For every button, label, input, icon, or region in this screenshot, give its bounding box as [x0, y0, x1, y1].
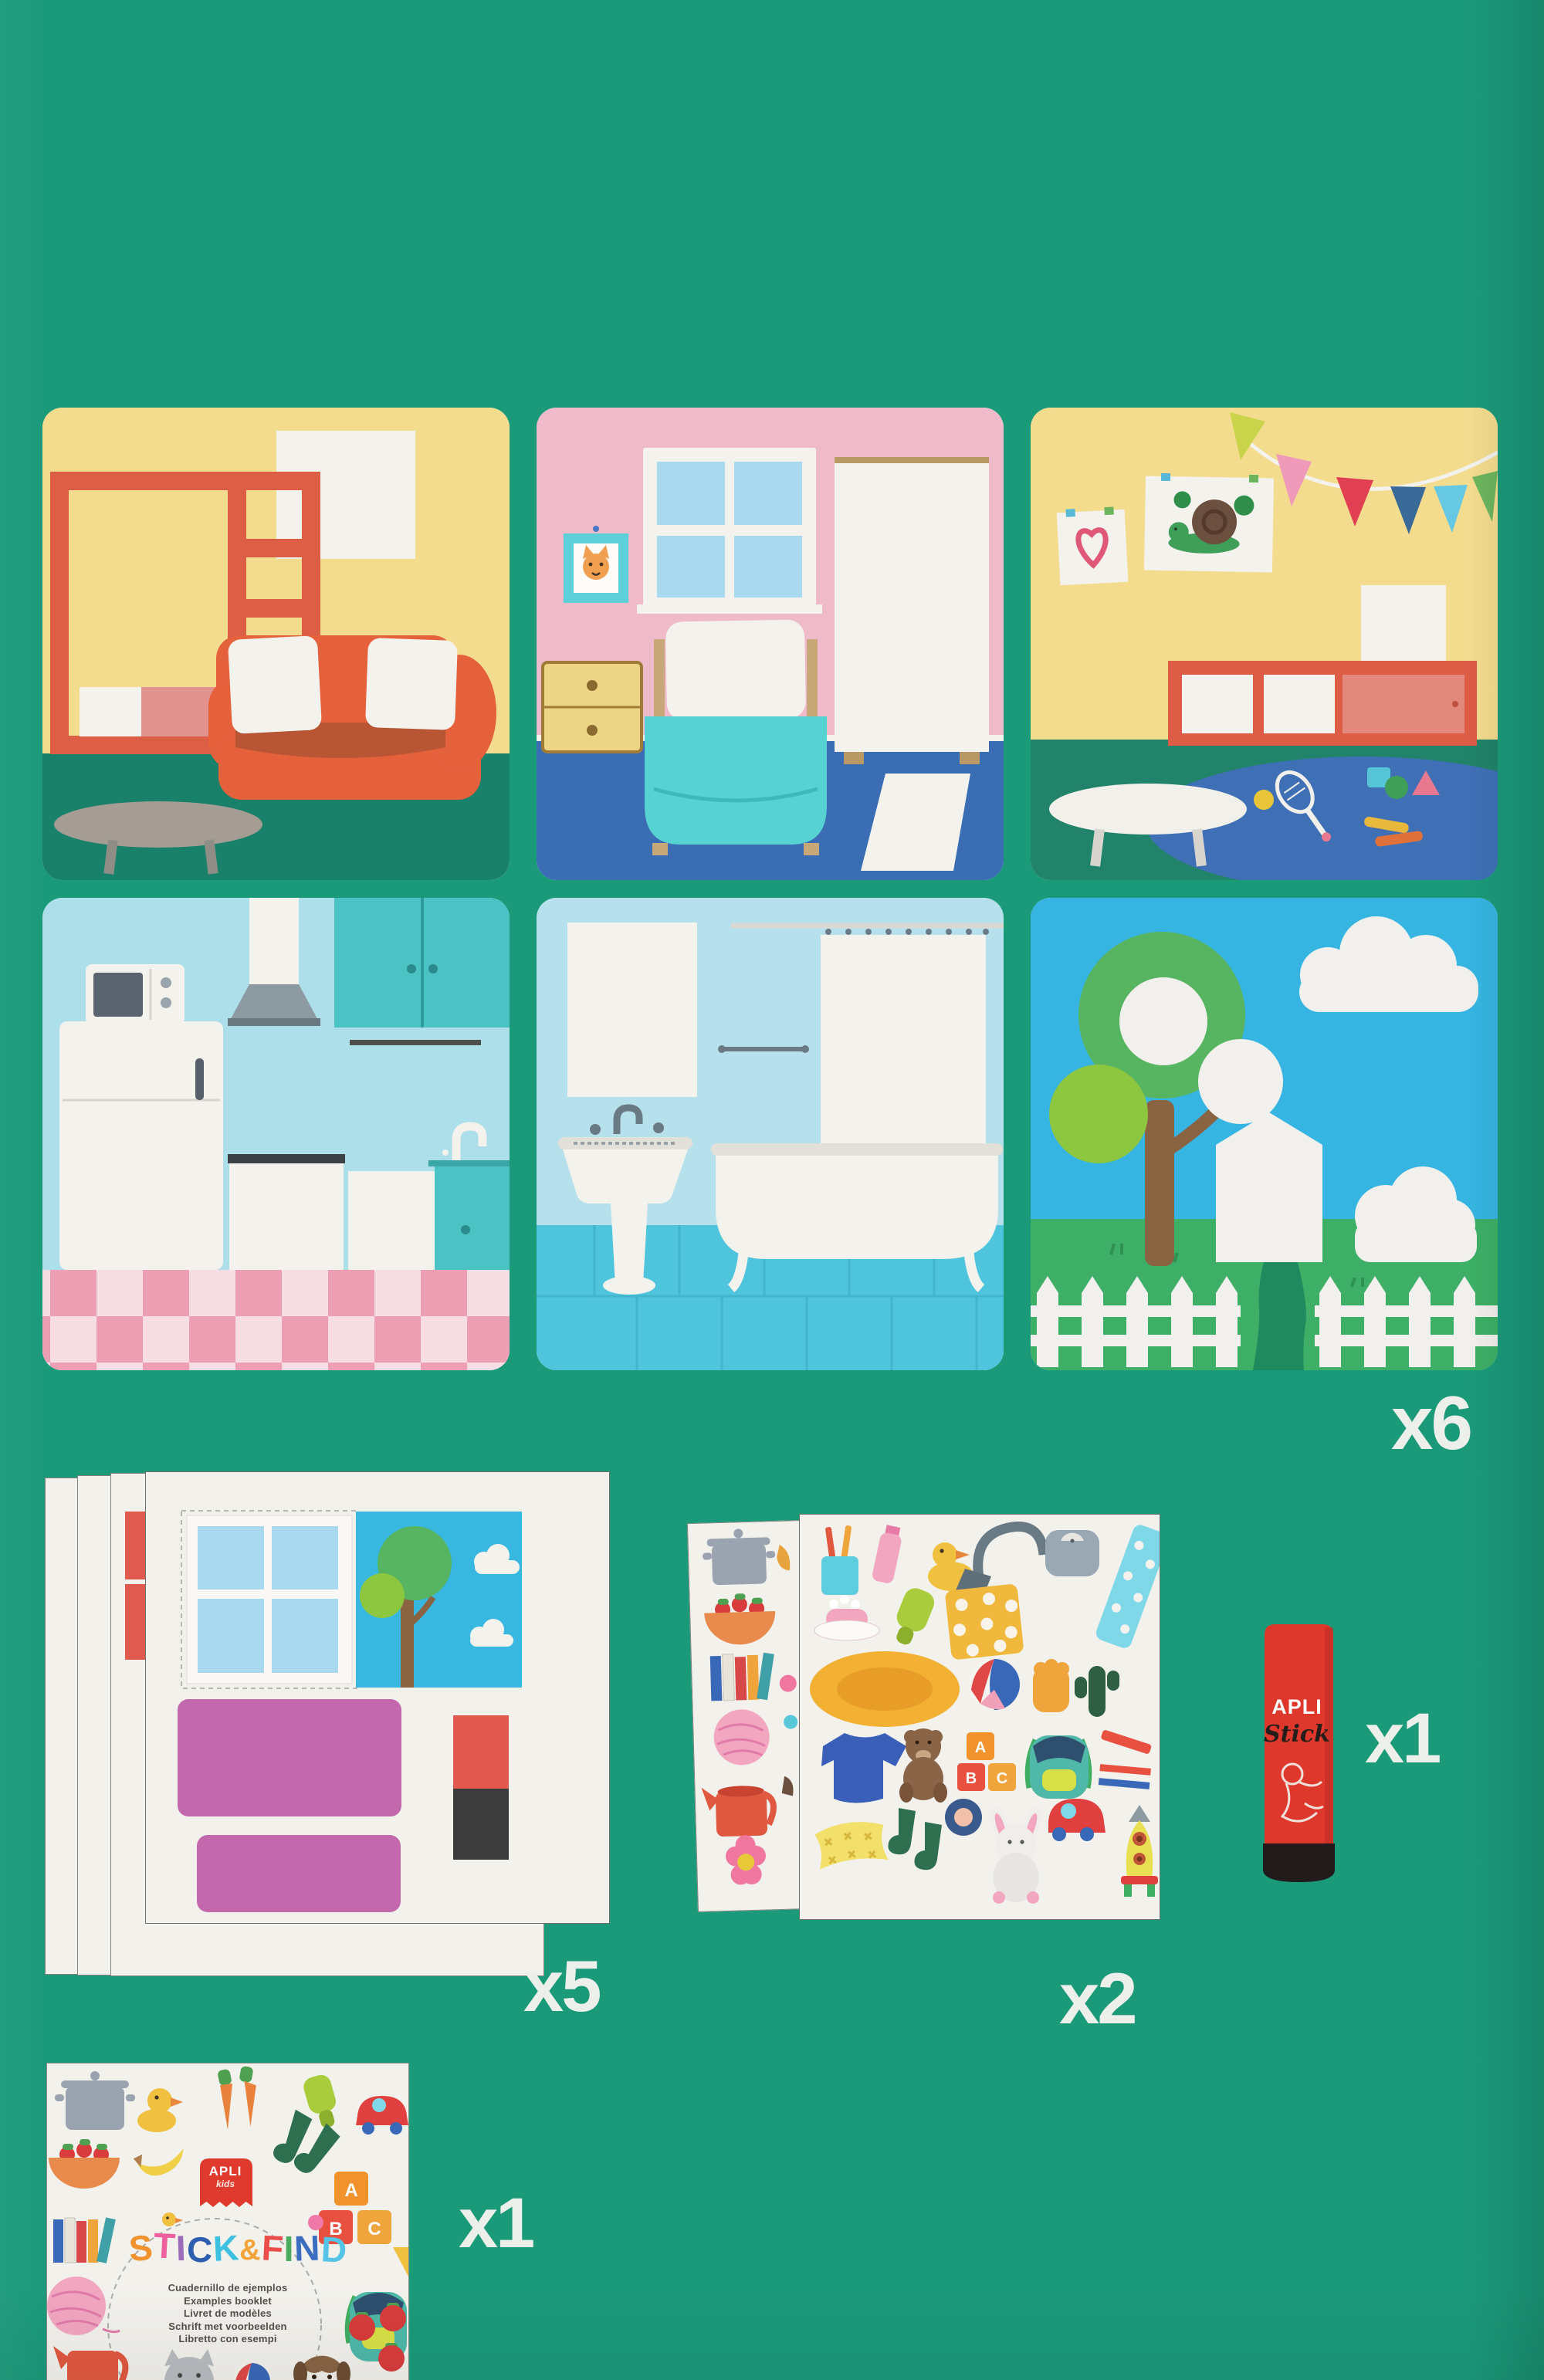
toothpaste-sticker — [871, 1524, 904, 1584]
living-room-scene — [42, 408, 510, 880]
scene-card-kitchen — [42, 898, 510, 1370]
blank-door-spot-left — [1182, 675, 1253, 733]
playroom-scene — [1031, 408, 1498, 880]
hairbrush-sticker — [888, 1585, 938, 1650]
triangle-sticker — [393, 2247, 408, 2277]
blank-fridge-spot — [59, 1021, 223, 1270]
booklet-count: x1 — [459, 2188, 533, 2259]
blank-picture-spot — [1361, 585, 1446, 661]
scene-card-garden — [1031, 898, 1498, 1370]
teddy-sticker — [899, 1728, 947, 1803]
blank-foliage-spot — [1198, 1039, 1283, 1124]
car-sticker — [356, 2096, 408, 2135]
coffee-table — [54, 801, 262, 848]
blank-foliage-spot — [1119, 977, 1207, 1065]
bathroom-scene — [537, 898, 1004, 1370]
pot-sticker — [55, 2071, 135, 2130]
blank-stove-spot — [228, 1154, 345, 1270]
svg-text:C: C — [997, 1770, 1007, 1787]
top-house-sheet — [145, 1471, 610, 1924]
glue-stick-art: APLI Stick — [1258, 1620, 1339, 1891]
scene-card-bedroom — [537, 408, 1004, 880]
blank-cushion-spot-left — [228, 635, 322, 734]
low-table — [1049, 784, 1247, 835]
sticker-sheet-front: A B C — [799, 1514, 1160, 1920]
snail-drawing — [1144, 473, 1274, 573]
blank-wardrobe-spot — [835, 457, 989, 764]
blank-shelf-spot — [80, 687, 141, 736]
garden-scene — [1031, 898, 1498, 1370]
house-sheet-stack — [45, 1471, 610, 1981]
glue-stick: APLI Stick — [1258, 1620, 1339, 1891]
blank-door-spot-right — [1264, 675, 1335, 733]
scarf-sticker — [814, 1818, 889, 1870]
subtitle-line: Livret de modèles — [112, 2307, 344, 2321]
subtitle-line: Schrift met voorbeelden — [112, 2321, 344, 2334]
examples-booklet: A B C — [46, 2063, 409, 2380]
flower-sticker — [725, 1835, 767, 1885]
banana-sticker — [133, 2148, 187, 2179]
beach-ball-sticker — [969, 1659, 1020, 1710]
rug-sticker — [810, 1651, 960, 1727]
microwave — [86, 964, 185, 1024]
scene-card-playroom — [1031, 408, 1498, 880]
books-sticker — [53, 2217, 116, 2263]
nightstand — [543, 662, 642, 752]
scene-cards-count: x6 — [1391, 1385, 1471, 1461]
svg-text:A: A — [975, 1739, 986, 1756]
house-sheet-art — [146, 1472, 609, 1923]
window-view-piece — [356, 1512, 522, 1688]
red-piece-peek — [125, 1584, 146, 1660]
sideboard — [1168, 661, 1477, 746]
kitchen-scene — [42, 898, 510, 1370]
bedroom-scene — [537, 408, 1004, 880]
booklet-logo-brand: APLI — [200, 2164, 251, 2179]
blank-mirror-spot — [567, 923, 697, 1097]
window-piece — [181, 1511, 359, 1688]
garden-path — [1253, 1262, 1306, 1370]
heart-drawing — [1056, 506, 1128, 585]
crayons-sticker — [1099, 1729, 1152, 1789]
glue-brand: APLI — [1271, 1695, 1322, 1718]
glue-stick-count: x1 — [1365, 1703, 1439, 1774]
sticker-sheets-count: x2 — [1059, 1962, 1136, 2035]
ring-sticker — [945, 1799, 982, 1836]
house-sheets-count: x5 — [523, 1950, 600, 2023]
books-sticker — [710, 1652, 776, 1701]
cat-picture — [564, 526, 628, 603]
checkered-floor — [42, 1270, 510, 1370]
duck-sticker — [137, 2088, 183, 2132]
cat-sticker — [164, 2349, 214, 2380]
red-piece-peek — [125, 1512, 146, 1579]
window — [637, 448, 822, 614]
dog-sticker — [293, 2355, 350, 2380]
subtitle-line: Examples booklet — [112, 2295, 344, 2308]
glue-cap — [1263, 1843, 1335, 1882]
pink-piece — [178, 1699, 401, 1816]
spoon-sticker-partial — [777, 1545, 791, 1571]
socks-sticker — [888, 1808, 942, 1870]
ball-sticker — [233, 2363, 270, 2380]
yarn-sticker — [713, 1708, 770, 1766]
watering-can-sticker — [53, 2346, 125, 2380]
blank-cushion-spot-right — [365, 638, 458, 730]
scene-card-living-room — [42, 408, 510, 880]
booklet-title: S T I C K & F I N D — [120, 2230, 356, 2266]
red-black-piece — [453, 1715, 509, 1860]
toothbrush-cup-sticker — [821, 1525, 858, 1595]
salad-sticker — [49, 2139, 120, 2189]
booklet-logo-sub: kids — [200, 2179, 251, 2189]
glove-sticker — [1033, 1659, 1069, 1712]
pink-piece — [197, 1835, 401, 1912]
abc-blocks-sticker: A B C — [957, 1732, 1016, 1791]
blank-counter-spot — [348, 1171, 435, 1270]
tshirt-sticker — [821, 1733, 906, 1803]
scene-card-bathroom — [537, 898, 1004, 1370]
bunny-sticker — [987, 1803, 1045, 1904]
rocket-sticker — [1121, 1805, 1158, 1897]
sticker-sheet-front-art: A B C — [800, 1515, 1160, 1919]
subtitle-line: Libretto con esempi — [112, 2333, 344, 2346]
towel-sticker — [1094, 1523, 1160, 1650]
watering-can-sticker — [701, 1785, 774, 1837]
title-i-dot — [308, 2215, 323, 2230]
upper-cabinet — [334, 898, 510, 1027]
bed — [645, 619, 827, 855]
svg-text:B: B — [966, 1770, 977, 1787]
carrots-sticker — [217, 2066, 259, 2130]
cactus-sticker — [1075, 1666, 1119, 1717]
svg-text:A: A — [344, 2180, 357, 2201]
salad-sticker — [704, 1593, 777, 1646]
soap-sticker — [814, 1595, 879, 1640]
pot-sticker — [702, 1528, 776, 1586]
packaging-back-panel: x6 — [0, 0, 1544, 2380]
subtitle-line: Cuadernillo de ejemplos — [112, 2282, 344, 2295]
shelf-shadow — [350, 1040, 481, 1045]
scale-sticker — [1045, 1530, 1099, 1576]
sticker-sheets: A B C — [693, 1509, 1166, 1926]
backpack-sticker — [1028, 1735, 1089, 1799]
blanket-sticker — [945, 1583, 1024, 1660]
svg-text:C: C — [367, 2219, 381, 2240]
booklet-subtitles: Cuadernillo de ejemplos Examples booklet… — [112, 2282, 344, 2346]
car-sticker — [1048, 1799, 1106, 1841]
glue-product: Stick — [1264, 1721, 1330, 1748]
